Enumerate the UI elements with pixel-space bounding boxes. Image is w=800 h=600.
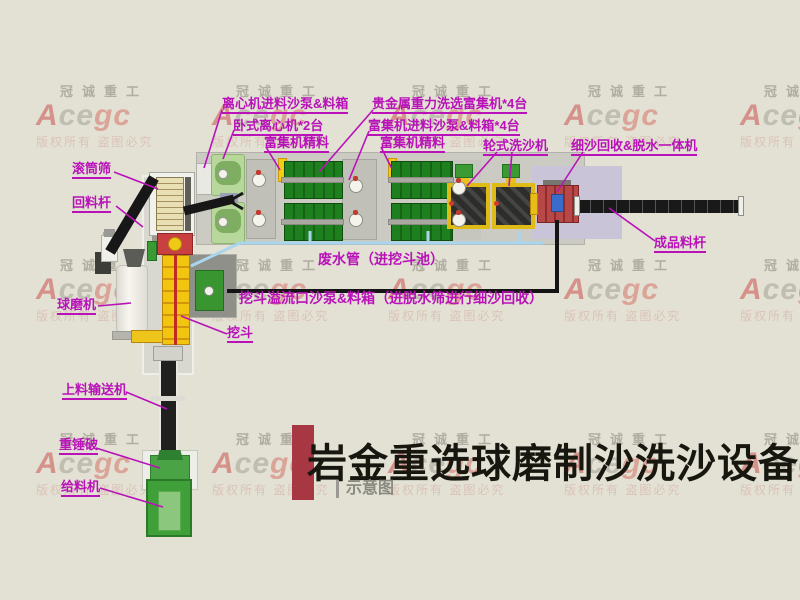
label-centrifuge-feed-pump: 离心机进料沙泵&料箱 bbox=[222, 97, 348, 114]
label-overflow-pump: 挖斗溢流口沙泵&料箱（进脱水筛进行细沙回收） bbox=[239, 291, 543, 306]
label-concentrate-left: 富集机精料 bbox=[264, 136, 329, 153]
feed-conveyor-fork bbox=[231, 202, 243, 209]
label-drum-screen: 滚筒筛 bbox=[72, 162, 111, 179]
label-enrichment-feed-pump: 富集机进料沙泵&料箱*4台 bbox=[368, 119, 520, 136]
return-conveyor bbox=[110, 178, 154, 252]
label-concentrate-right: 富集机精料 bbox=[380, 136, 445, 153]
label-product-conveyor: 成品料杆 bbox=[654, 236, 706, 253]
label-fine-sand-recovery: 细沙回收&脱水一体机 bbox=[571, 139, 697, 156]
label-enrichment-machines: 贵金属重力洗选富集机*4台 bbox=[372, 97, 527, 114]
page-subtitle: 示意图 bbox=[336, 480, 394, 498]
label-feeder: 给料机 bbox=[61, 480, 100, 497]
label-hammer-crusher: 重锤破 bbox=[59, 438, 98, 455]
label-ball-mill: 球磨机 bbox=[57, 298, 96, 315]
label-waste-water-pipe: 废水管（进挖斗池） bbox=[318, 252, 444, 267]
label-return-conveyor: 回料杆 bbox=[72, 196, 111, 213]
label-feed-conveyor: 上料输送机 bbox=[62, 383, 127, 400]
centrifuge-feed-conveyor bbox=[184, 199, 234, 211]
label-horizontal-centrifuge: 卧式离心机*2台 bbox=[233, 119, 323, 136]
label-wheel-washer: 轮式洗沙机 bbox=[483, 139, 548, 156]
schematic-canvas: 冠诚重工Acegc版权所有 盗图必究冠诚重工Acegc版权所有 盗图必究冠诚重工… bbox=[0, 0, 800, 600]
label-bucket: 挖斗 bbox=[227, 326, 253, 343]
